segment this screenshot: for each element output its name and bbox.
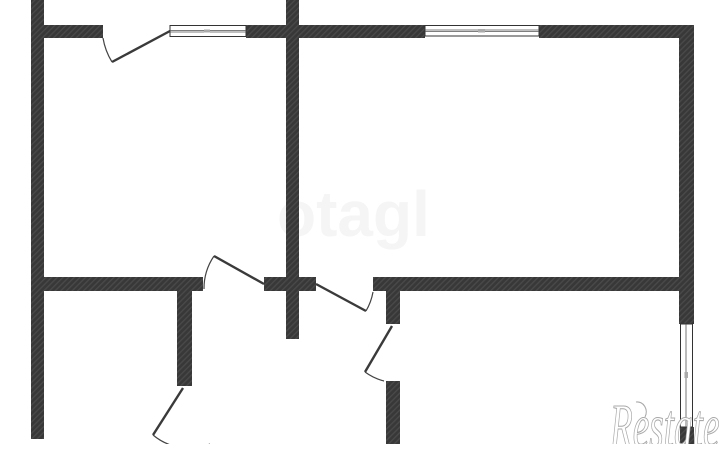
svg-text:otagl: otagl [277, 178, 430, 250]
svg-text:Restate: Restate [609, 392, 719, 444]
